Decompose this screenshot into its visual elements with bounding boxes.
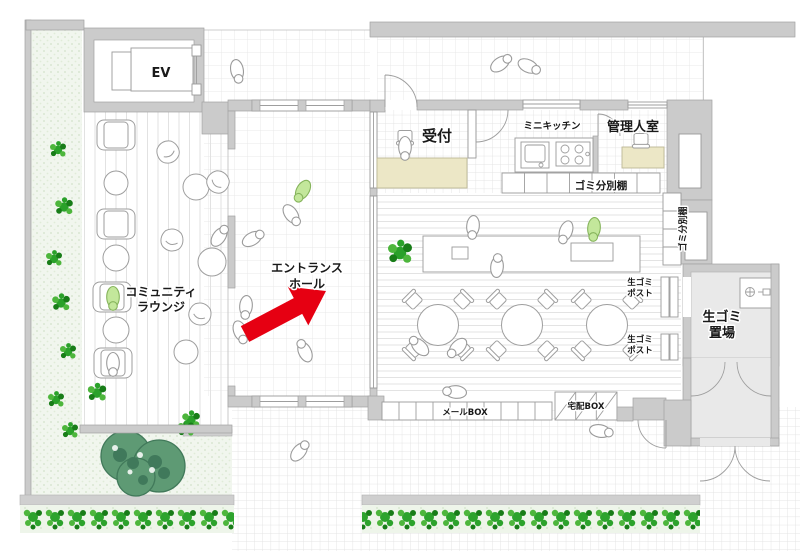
label-mail-box: メールBOX xyxy=(442,408,488,418)
label-garbage-storage-1: 生ゴミ xyxy=(702,309,741,325)
kitchen-stove xyxy=(556,142,590,166)
vestibule-floor xyxy=(691,358,771,438)
label-reception: 受付 xyxy=(422,127,452,145)
mini-kitchen xyxy=(515,138,593,172)
label-garbage-storage-2: 置場 xyxy=(709,325,735,341)
label-community-lounge-2: ラウンジ xyxy=(137,300,185,314)
raw-garbage-post-upper-box xyxy=(661,277,669,317)
reception-counter xyxy=(377,158,467,188)
entrance-door-bottom xyxy=(252,396,352,407)
hedge-bottom-left xyxy=(20,505,234,533)
label-garbage-post-lower-2: ポスト xyxy=(627,345,653,356)
lounge-table xyxy=(198,248,226,276)
lounge-table xyxy=(103,245,129,271)
label-garbage-shelf: ゴミ分別棚 xyxy=(575,179,628,192)
label-entrance-hall-1: エントランス xyxy=(271,261,343,275)
label-garbage-post-lower-1: 生ゴミ xyxy=(627,334,653,345)
window-kitchen xyxy=(523,100,580,108)
raw-garbage-post-lower-box xyxy=(661,334,669,360)
curb-right xyxy=(362,495,700,505)
label-garbage-post-upper-2: ポスト xyxy=(627,288,653,299)
lounge-table xyxy=(103,317,129,343)
armchair xyxy=(97,209,135,239)
label-mini-kitchen: ミニキッチン xyxy=(523,121,580,132)
window-reception-side xyxy=(370,112,377,188)
hedge-bottom-right xyxy=(362,505,700,533)
top-wall xyxy=(370,22,795,37)
elevator-room xyxy=(94,40,201,102)
label-community-lounge-1: コミュニティ xyxy=(125,285,196,299)
entrance-door-top xyxy=(252,100,352,111)
curb-left xyxy=(20,495,234,505)
floor-plan: EV 受付 ミニキッチン 管理人室 ゴミ分別棚 ゴミ分別棚 コミュニティ ラウン… xyxy=(0,0,800,551)
garden-border xyxy=(25,20,31,507)
label-delivery-box: 宅配BOX xyxy=(568,401,605,412)
manager-desk xyxy=(622,147,664,168)
label-entrance-hall-2: ホール xyxy=(289,277,325,291)
lounge-table xyxy=(183,174,209,200)
window-manager xyxy=(628,102,667,108)
lounge-table xyxy=(104,171,128,195)
raw-garbage-room xyxy=(664,264,779,446)
label-elevator: EV xyxy=(152,66,171,81)
label-garbage-shelf-side: ゴミ分別棚 xyxy=(677,206,689,251)
lounge-table xyxy=(174,340,198,364)
label-garbage-post-upper-1: 生ゴミ xyxy=(627,277,653,288)
label-manager-room: 管理人室 xyxy=(607,119,659,135)
window-hall-side xyxy=(370,196,377,388)
garden-strip-left xyxy=(31,30,82,430)
floor-plan-page: EV 受付 ミニキッチン 管理人室 ゴミ分別棚 ゴミ分別棚 コミュニティ ラウン… xyxy=(0,0,800,551)
lounge-bottom-wall xyxy=(80,425,232,433)
armchair xyxy=(97,120,135,150)
